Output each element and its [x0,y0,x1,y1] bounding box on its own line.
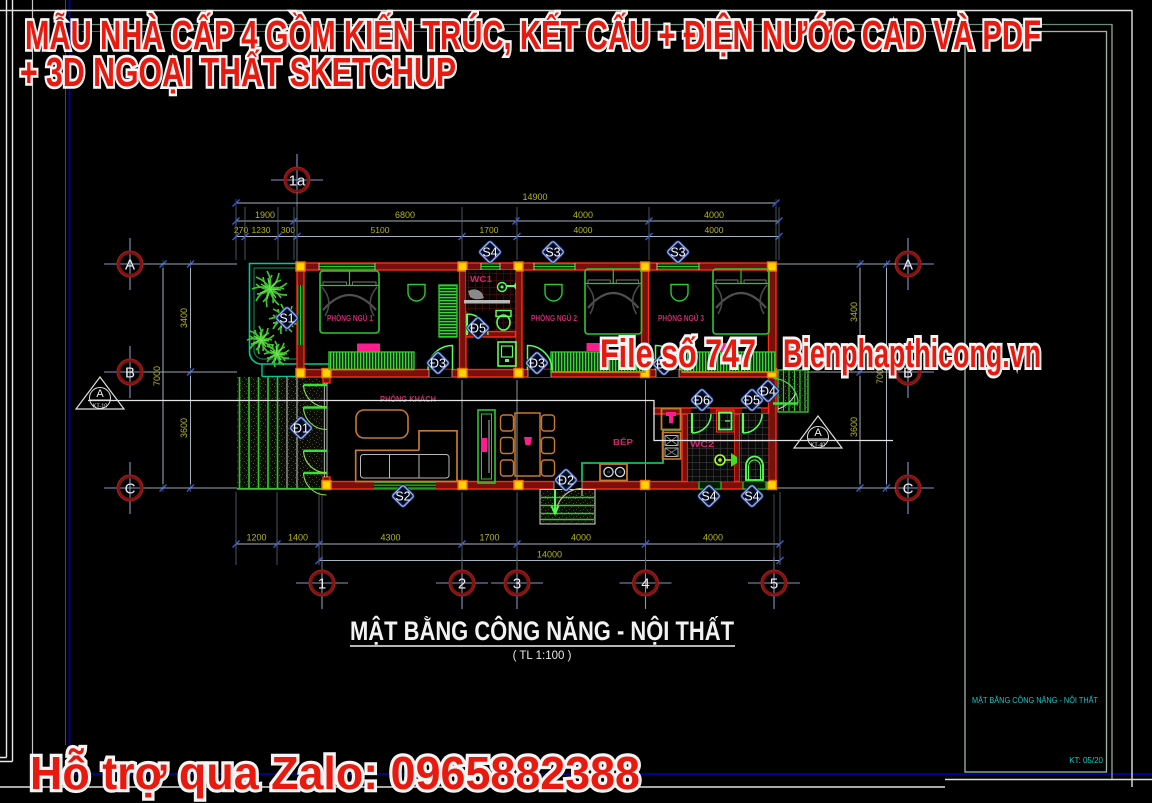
svg-text:S1: S1 [279,312,294,326]
svg-text:4000: 4000 [705,225,724,235]
svg-text:+ 3D NGOẠI THẤT SKETCHUP: + 3D NGOẠI THẤT SKETCHUP [20,49,456,95]
svg-text:5100: 5100 [371,225,390,235]
svg-text:Đ2: Đ2 [558,474,574,488]
svg-text:PHÒNG KHÁCH: PHÒNG KHÁCH [380,393,436,404]
svg-text:PHÒNG NGỦ 1: PHÒNG NGỦ 1 [327,312,373,323]
svg-text:A: A [903,257,913,274]
svg-text:3400: 3400 [849,302,859,322]
svg-text:B: B [125,365,135,382]
svg-text:4000: 4000 [574,225,593,235]
svg-text:KT: 05/20: KT: 05/20 [1069,756,1103,765]
svg-text:3600: 3600 [849,417,859,437]
svg-text:Đ3: Đ3 [529,357,545,371]
svg-text:7000: 7000 [152,366,162,386]
svg-text:KT-10: KT-10 [93,404,108,410]
svg-text:S3: S3 [545,246,560,260]
svg-text:1900: 1900 [255,210,275,220]
svg-text:300: 300 [281,225,295,235]
svg-text:PHÒNG NGỦ 3: PHÒNG NGỦ 3 [658,312,704,323]
svg-text:1700: 1700 [480,225,499,235]
svg-text:Hỗ trợ qua Zalo: 0965882388: Hỗ trợ qua Zalo: 0965882388 [30,747,640,799]
svg-text:14000: 14000 [537,550,562,560]
svg-text:MẬT BẰNG CÔNG NĂNG - NỘI THẤT: MẬT BẰNG CÔNG NĂNG - NỘI THẤT [350,615,734,646]
svg-text:4: 4 [641,576,649,593]
svg-text:4300: 4300 [380,533,400,543]
svg-text:S4: S4 [482,246,497,260]
svg-text:C: C [903,481,914,498]
svg-text:BỄP: BỄP [613,436,633,447]
svg-text:Đ6: Đ6 [694,394,710,408]
svg-text:S2: S2 [395,490,410,504]
svg-text:2: 2 [458,576,466,593]
svg-text:Bienphapthicong.vn: Bienphapthicong.vn [783,332,1041,376]
svg-text:File số 747: File số 747 [600,332,756,376]
svg-text:C: C [125,481,136,498]
svg-text:Đ5: Đ5 [470,322,486,336]
svg-text:S3: S3 [670,246,685,260]
svg-text:4000: 4000 [703,533,723,543]
svg-text:( TL 1:100 ): ( TL 1:100 ) [513,650,572,662]
svg-text:Đ1: Đ1 [293,422,309,436]
svg-text:Đ5: Đ5 [744,394,760,408]
svg-text:Đ3: Đ3 [430,357,446,371]
svg-text:4000: 4000 [704,210,724,220]
svg-text:14900: 14900 [522,192,547,202]
svg-text:S4: S4 [701,490,716,504]
svg-text:A: A [125,257,135,274]
svg-text:1: 1 [318,576,326,593]
svg-text:KT-40: KT-40 [811,443,826,449]
svg-text:5: 5 [770,576,778,593]
svg-text:A: A [96,388,104,400]
svg-text:3: 3 [513,576,521,593]
svg-text:1230: 1230 [252,225,271,235]
svg-text:PHÒNG NGỦ 2: PHÒNG NGỦ 2 [531,312,577,323]
svg-text:WC2: WC2 [690,440,715,449]
svg-text:1a: 1a [289,173,306,190]
svg-text:A: A [814,427,822,439]
svg-text:4000: 4000 [573,210,593,220]
svg-text:S4: S4 [744,490,759,504]
svg-text:3600: 3600 [179,418,189,438]
svg-text:1400: 1400 [288,533,308,543]
svg-text:3400: 3400 [179,308,189,328]
svg-text:Đ4: Đ4 [760,385,776,399]
svg-text:4000: 4000 [571,533,591,543]
svg-text:WC1: WC1 [470,275,493,284]
svg-text:6800: 6800 [395,210,415,220]
svg-text:1700: 1700 [479,533,499,543]
svg-text:MẬT BẰNG CÔNG NĂNG - NỘI THẤT: MẬT BẰNG CÔNG NĂNG - NỘI THẤT [972,695,1098,705]
svg-text:1200: 1200 [246,533,266,543]
